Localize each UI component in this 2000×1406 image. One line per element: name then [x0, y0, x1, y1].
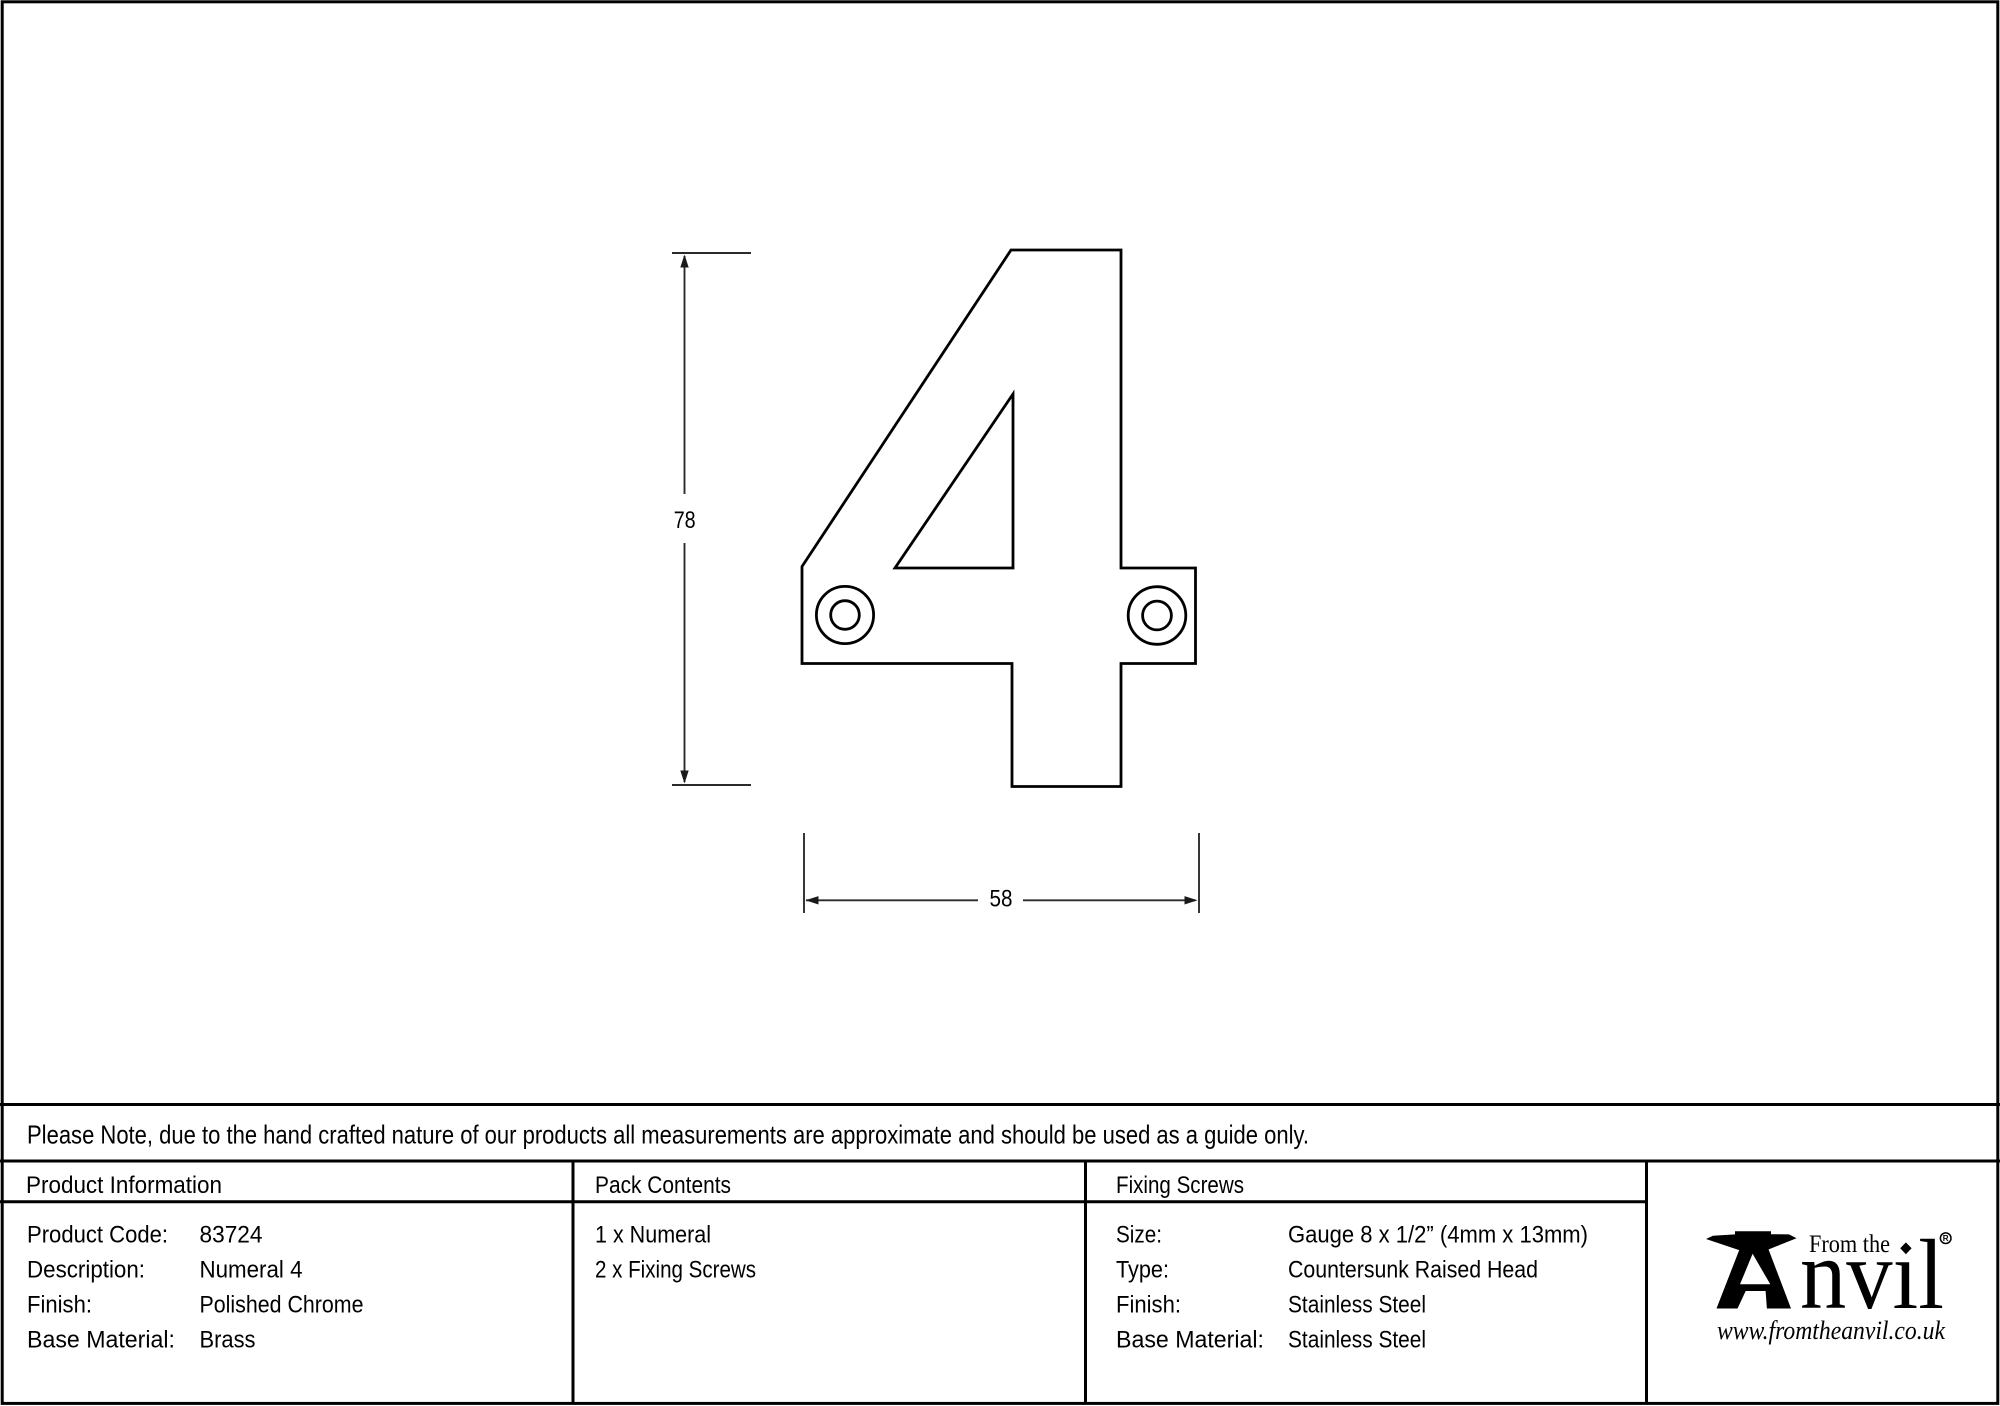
svg-text:Brass: Brass — [200, 1327, 256, 1354]
svg-text:www.fromtheanvil.co.uk: www.fromtheanvil.co.uk — [1717, 1316, 1945, 1345]
svg-text:nvıl: nvıl — [1800, 1219, 1944, 1330]
svg-text:R: R — [1943, 1234, 1949, 1243]
svg-text:Product Code:: Product Code: — [27, 1222, 168, 1249]
svg-text:Please Note, due to the hand c: Please Note, due to the hand crafted nat… — [27, 1120, 1309, 1150]
svg-text:Numeral 4: Numeral 4 — [200, 1257, 303, 1284]
svg-text:58: 58 — [990, 886, 1013, 913]
svg-text:83724: 83724 — [200, 1222, 263, 1249]
svg-text:Gauge 8 x 1/2” (4mm x 13mm): Gauge 8 x 1/2” (4mm x 13mm) — [1288, 1222, 1588, 1249]
svg-text:Size:: Size: — [1116, 1222, 1162, 1249]
svg-text:Stainless Steel: Stainless Steel — [1288, 1327, 1426, 1354]
svg-text:Base Material:: Base Material: — [27, 1327, 175, 1354]
svg-text:Stainless Steel: Stainless Steel — [1288, 1292, 1426, 1319]
svg-text:1 x Numeral: 1 x Numeral — [595, 1222, 711, 1249]
svg-text:Pack Contents: Pack Contents — [595, 1172, 731, 1199]
svg-text:Countersunk Raised Head: Countersunk Raised Head — [1288, 1257, 1538, 1284]
svg-text:78: 78 — [674, 507, 696, 534]
svg-text:Finish:: Finish: — [27, 1292, 92, 1319]
svg-text:Finish:: Finish: — [1116, 1292, 1181, 1319]
svg-text:Type:: Type: — [1116, 1257, 1169, 1284]
svg-text:Product Information: Product Information — [26, 1172, 222, 1199]
svg-text:Description:: Description: — [27, 1257, 145, 1284]
svg-text:Fixing Screws: Fixing Screws — [1116, 1172, 1244, 1199]
svg-text:Base Material:: Base Material: — [1116, 1327, 1264, 1354]
svg-text:Polished Chrome: Polished Chrome — [200, 1292, 364, 1319]
svg-text:2 x Fixing Screws: 2 x Fixing Screws — [595, 1257, 756, 1284]
